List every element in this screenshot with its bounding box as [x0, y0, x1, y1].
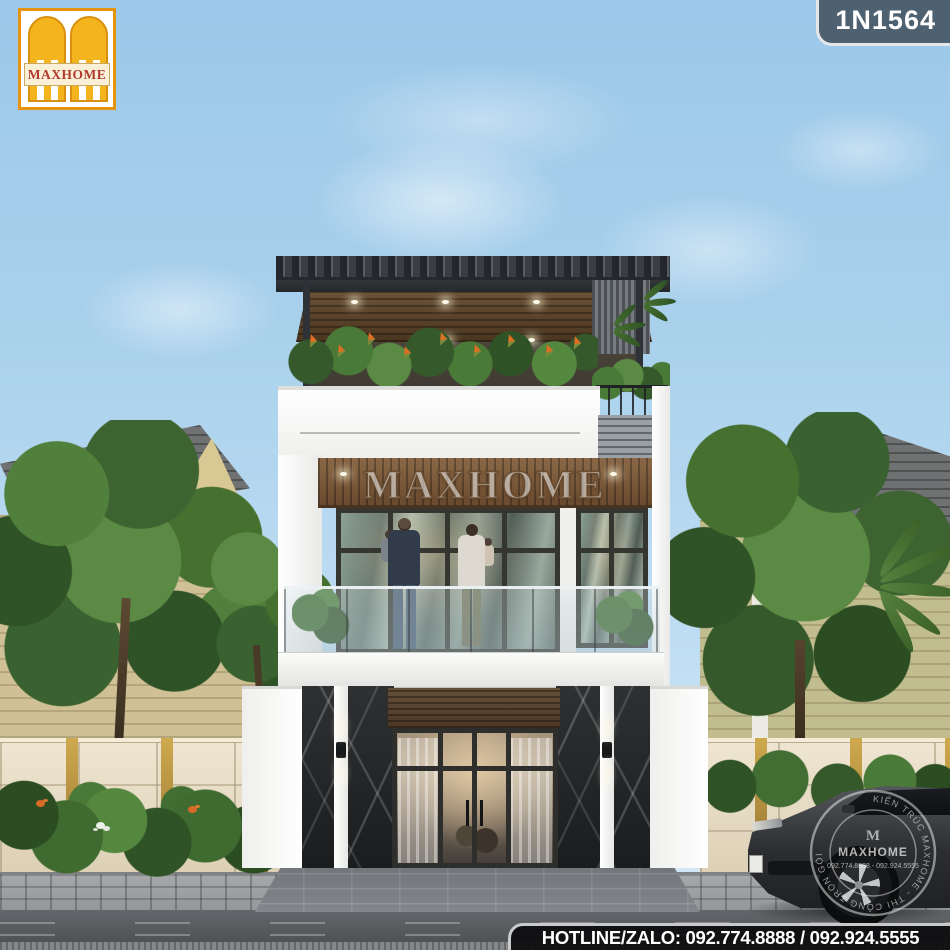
parapet-wall [278, 386, 600, 458]
architectural-render: MAXHOME [0, 0, 950, 950]
entrance-wood-header [388, 688, 560, 728]
orange-flowers [188, 806, 197, 813]
marble-wall-left [302, 686, 394, 868]
sheer-curtain-left [398, 738, 440, 863]
child-head [484, 538, 492, 546]
door-handle [466, 800, 469, 826]
boundary-wall-right [650, 686, 708, 868]
rooftop-planter [286, 322, 598, 394]
tree-right-trunk [795, 640, 805, 750]
fence-right-cap [700, 738, 950, 743]
model-code-badge: 1N1564 [816, 0, 950, 46]
white-flowers [96, 822, 105, 829]
orange-flowers [36, 800, 45, 807]
man-silhouette [388, 530, 420, 586]
entrance-glass-doors [392, 728, 558, 868]
door-center-stile [472, 733, 477, 863]
sheer-curtain-right [510, 738, 552, 863]
maxhome-monogram [28, 16, 66, 102]
door-handle [480, 800, 483, 826]
stamp-brand-text: MAXHOME [838, 845, 908, 859]
balcony-slab [278, 652, 664, 690]
maxhome-logo: MAXHOME [18, 8, 116, 110]
boundary-wall-left [242, 686, 302, 868]
hotline-banner: HOTLINE/ZALO: 092.774.8888 / 092.924.555… [508, 923, 950, 950]
man-head [398, 518, 411, 531]
woman-silhouette [458, 535, 485, 589]
circular-watermark-stamp: KIẾN TRÚC MAXHOME - THI CÔNG TRỌN GÓI M … [798, 778, 948, 928]
ceiling-downlight [533, 300, 540, 304]
car-front-plate [749, 855, 763, 873]
wall-sconce-light [336, 742, 346, 758]
stamp-monogram: M [866, 828, 880, 844]
pergola-roof-louvers [276, 256, 670, 280]
maxhome-logo-wordmark: MAXHOME [24, 63, 110, 86]
woman-head [466, 524, 478, 536]
door-mullion [506, 733, 511, 863]
wall-sconce-light [602, 742, 612, 758]
balcony-glass-railing [284, 586, 660, 656]
maxhome-monogram [70, 16, 108, 102]
door-mullion [438, 733, 443, 863]
facade-watermark: MAXHOME [318, 462, 652, 506]
parapet-groove [300, 432, 580, 434]
ceiling-downlight [351, 300, 358, 304]
ceiling-downlight [442, 300, 449, 304]
stamp-phone-text: 092.774.8888 - 092.924.5555 [827, 863, 919, 870]
